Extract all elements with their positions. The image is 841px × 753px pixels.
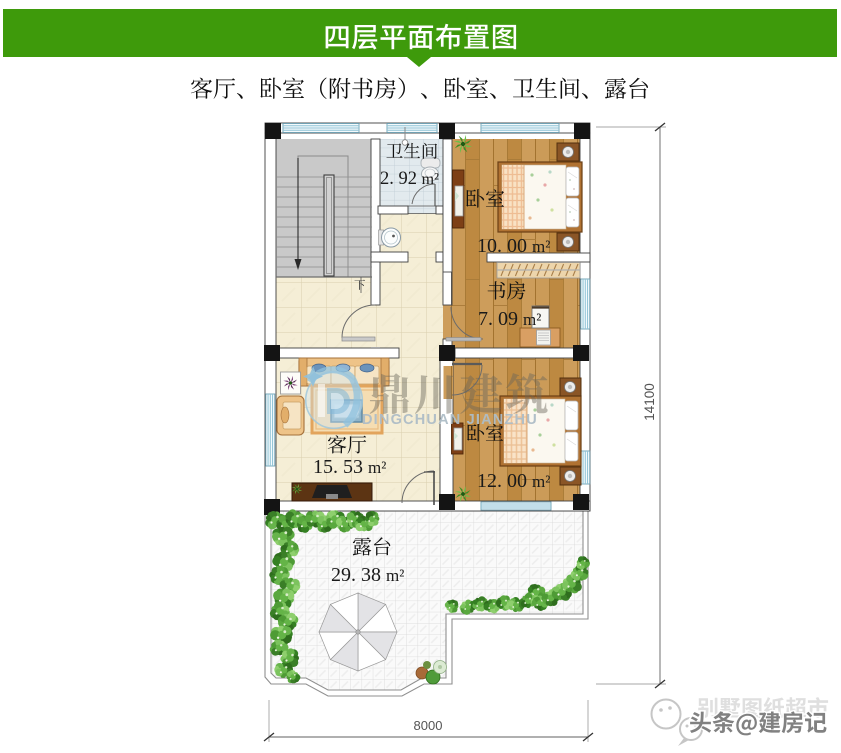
svg-text:12. 00 m²: 12. 00 m² <box>477 470 550 492</box>
svg-text:29. 38 m²: 29. 38 m² <box>331 564 404 586</box>
svg-text:15. 53 m²: 15. 53 m² <box>313 456 386 478</box>
svg-text:8000: 8000 <box>414 718 443 733</box>
svg-text:10. 00 m²: 10. 00 m² <box>477 235 550 257</box>
svg-text:14100: 14100 <box>642 383 657 421</box>
svg-text:DINGCHUAN JIANZHU: DINGCHUAN JIANZHU <box>362 412 538 428</box>
svg-text:2. 92 m²: 2. 92 m² <box>380 169 439 189</box>
svg-text:7. 09 m²: 7. 09 m² <box>478 308 541 330</box>
